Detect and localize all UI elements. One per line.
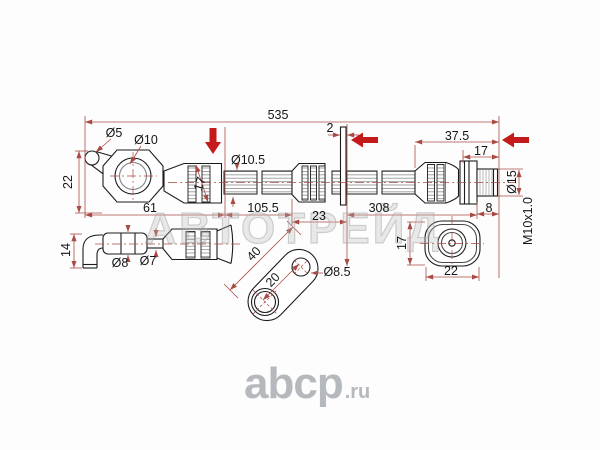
technical-drawing-page: АВТОТРЕЙД abcp .ru 535 Ø5 Ø10 22 17 61 Ø… [0, 0, 600, 450]
dim-section-a: 105.5 [247, 202, 278, 215]
dim-end-view-height: 17 [396, 236, 409, 250]
dim-thread-length: 8 [486, 202, 493, 215]
dim-fitting-body-length: 17 [474, 145, 488, 158]
dim-section-c: 308 [369, 202, 390, 215]
dim-tube-dia: Ø7 [140, 255, 157, 268]
left-arrow-2-icon [502, 133, 529, 148]
mount-flange-edge [341, 127, 347, 205]
dim-overall-length: 535 [268, 109, 289, 122]
dim-end-view-width: 22 [444, 265, 458, 278]
dim-end-fitting-length: 37.5 [445, 130, 469, 143]
dim-elbow-drop: 14 [60, 243, 73, 257]
abcp-logo: abcp .ru [244, 366, 370, 402]
dim-plate-thickness: 2 [327, 122, 334, 135]
dim-eye-hole-dia: Ø10 [134, 134, 158, 147]
dim-collar-dia: Ø15 [506, 170, 519, 194]
dim-hose-dia: Ø10.5 [231, 154, 265, 167]
thread-spec-note: M10x1.0 [522, 197, 535, 245]
logo-tld-text: .ru [345, 382, 371, 402]
down-arrow-icon [205, 128, 221, 154]
dim-banjo-height: 22 [62, 175, 75, 189]
dim-bracket-hole-dia: Ø8.5 [323, 266, 350, 279]
dim-banjo-section: 61 [143, 202, 157, 215]
logo-brand-text: abcp [244, 366, 343, 402]
dim-sleeve-dia: Ø8 [112, 257, 129, 270]
dim-tab-hole-dia: Ø5 [106, 127, 123, 140]
dim-section-b: 23 [312, 210, 326, 223]
